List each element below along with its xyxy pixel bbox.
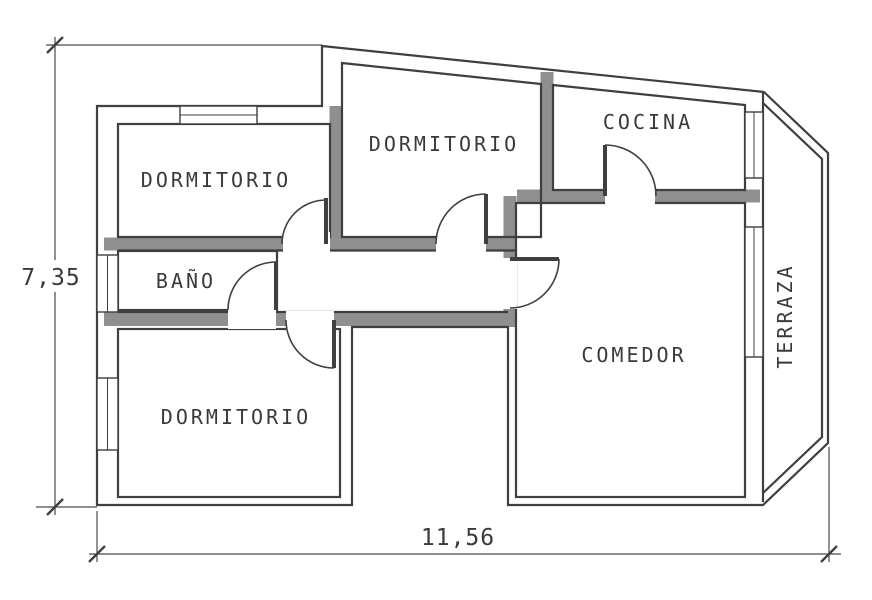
floor-plan-page: 7,35 11,56 DORMITORIO DORMITORIO COCINA … xyxy=(0,0,872,600)
door-openings xyxy=(228,186,655,331)
label-comedor: COMEDOR xyxy=(581,343,686,367)
doors xyxy=(228,145,656,368)
label-dormitorio-bottom: DORMITORIO xyxy=(161,405,311,429)
door-opening xyxy=(228,302,276,329)
label-bano: BAÑO xyxy=(156,269,216,293)
door-opening xyxy=(436,232,486,253)
floor-plan-canvas: 7,35 11,56 DORMITORIO DORMITORIO COCINA … xyxy=(0,0,872,600)
dimension-lines xyxy=(36,37,841,562)
room-outlines xyxy=(118,63,822,502)
label-cocina: COCINA xyxy=(603,110,693,134)
room-cocina xyxy=(553,85,745,190)
door-arc-comedor xyxy=(510,259,559,308)
label-dormitorio-top-left: DORMITORIO xyxy=(141,168,291,192)
door-opening xyxy=(286,311,334,331)
width-dimension-label: 11,56 xyxy=(421,525,495,551)
label-terraza: TERRAZA xyxy=(773,263,797,368)
door-opening xyxy=(502,258,517,309)
door-opening xyxy=(605,186,655,206)
label-dormitorio-top: DORMITORIO xyxy=(369,132,519,156)
door-opening xyxy=(283,232,330,253)
height-dimension-label: 7,35 xyxy=(21,265,80,291)
